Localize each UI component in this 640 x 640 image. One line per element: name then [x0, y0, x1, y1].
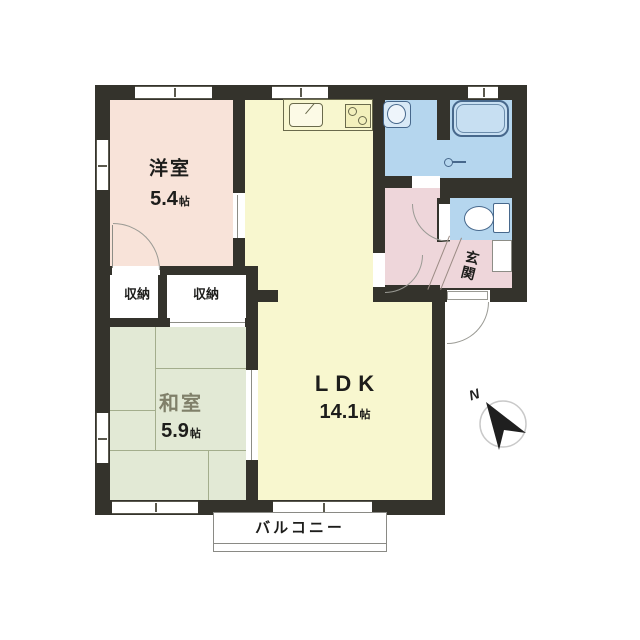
- balcony-inner-line: [213, 543, 387, 544]
- wall-western-ldk: [233, 98, 245, 268]
- room-size-unit: 帖: [179, 197, 190, 208]
- closet-label-right: 収納: [193, 288, 219, 301]
- compass: N: [455, 372, 545, 462]
- tatami-line: [155, 368, 246, 369]
- floor-plan: N 洋室 5.4帖 収納 収納 和室 5.9帖 LDK 14.1帖 玄関 バルコ…: [0, 0, 640, 640]
- toilet-tank: [493, 203, 510, 233]
- door-leaf-western: [237, 195, 238, 238]
- room-size-unit: 帖: [359, 410, 370, 421]
- balcony-label: バルコニー: [255, 521, 345, 536]
- wall-bath-divider: [437, 98, 450, 140]
- tatami-line: [155, 327, 156, 450]
- compass-north-label: N: [467, 385, 482, 404]
- kitchen-sink: [289, 103, 323, 127]
- door-gap-ldk-hall: [373, 253, 385, 287]
- room-size-western: 5.4帖: [150, 189, 190, 209]
- wall-ldk-right: [432, 288, 445, 515]
- bath-faucet-arm: [452, 161, 466, 163]
- window-bath-top: [468, 86, 498, 99]
- wall-hall-bottom: [373, 285, 440, 302]
- closet-label-left: 収納: [124, 288, 150, 301]
- door-leaf-entrance: [447, 291, 488, 300]
- room-size-ldk: 14.1帖: [320, 402, 371, 422]
- room-label-ldk: LDK: [315, 373, 381, 395]
- room-size-unit: 帖: [190, 429, 201, 440]
- room-label-japanese: 和室: [159, 394, 203, 414]
- sliding-door-japanese-ldk: [246, 370, 258, 460]
- room-label-western: 洋室: [149, 160, 191, 179]
- room-size-value: 5.9: [161, 421, 189, 441]
- door-leaf-closet-left: [112, 225, 113, 268]
- door-gap-western: [233, 193, 245, 238]
- window-western-top: [135, 86, 212, 99]
- bathtub-inner: [456, 104, 505, 133]
- tatami-line: [110, 450, 246, 451]
- door-arc-entrance: [447, 302, 489, 344]
- room-size-value: 5.4: [150, 189, 178, 209]
- toilet-bowl: [464, 206, 494, 231]
- stove-burner: [348, 107, 357, 116]
- room-size-japanese: 5.9帖: [161, 421, 201, 441]
- tatami-line: [110, 410, 155, 411]
- wall-closet-right: [246, 266, 258, 327]
- window-japanese-bottom: [112, 501, 198, 514]
- wall-stub: [258, 290, 278, 302]
- room-size-value: 14.1: [320, 402, 359, 422]
- wall-bath-bottom: [440, 178, 527, 198]
- wall-washroom-bottom: [383, 176, 412, 188]
- window-japanese-left: [96, 413, 109, 463]
- door-gap-washroom: [412, 176, 440, 188]
- sliding-door-line: [251, 370, 252, 460]
- shoe-cabinet: [492, 240, 512, 272]
- sliding-door-line: [170, 322, 245, 323]
- wall-closet-divider: [158, 272, 167, 322]
- stove-burner: [358, 116, 367, 125]
- tatami-line: [208, 450, 209, 502]
- room-ldk-area-lower: [380, 302, 435, 502]
- washbasin-bowl: [387, 104, 406, 124]
- window-kitchen-top: [272, 86, 328, 99]
- window-western-left: [96, 140, 109, 190]
